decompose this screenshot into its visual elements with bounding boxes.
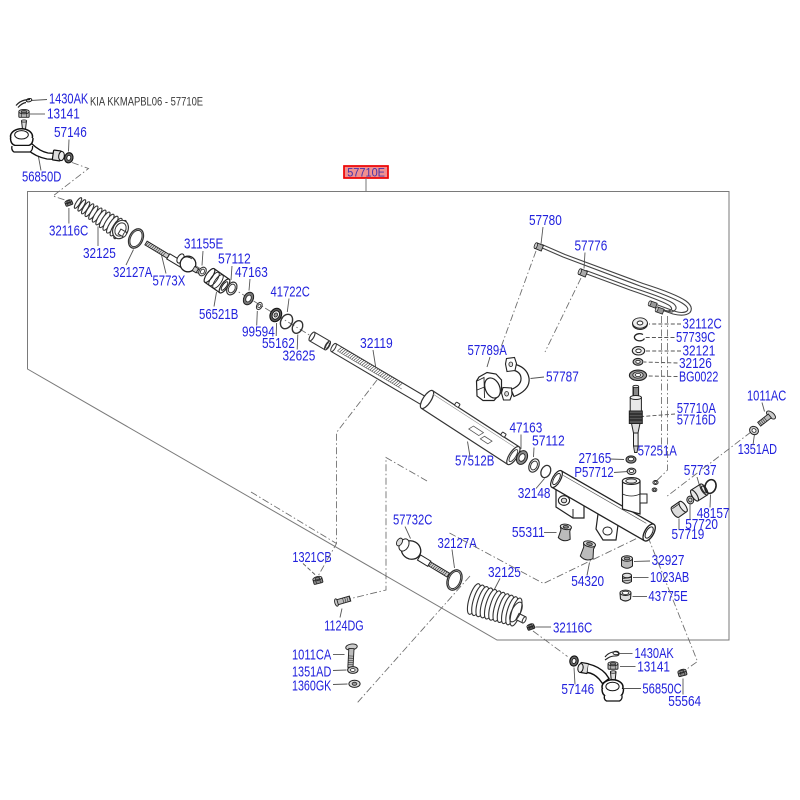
svg-text:1011AC: 1011AC [747, 389, 787, 405]
svg-text:47163: 47163 [235, 265, 268, 281]
svg-text:1360GK: 1360GK [292, 679, 331, 695]
svg-text:57787: 57787 [546, 370, 579, 386]
svg-text:5773X: 5773X [153, 274, 186, 290]
svg-text:57146: 57146 [54, 125, 87, 141]
svg-text:57776: 57776 [575, 239, 608, 255]
svg-text:32127A: 32127A [113, 265, 152, 281]
svg-text:41722C: 41722C [271, 285, 311, 301]
svg-text:32148: 32148 [518, 486, 551, 502]
svg-text:32127A: 32127A [438, 536, 477, 552]
svg-text:KIA KKMAPBL06 - 57710E: KIA KKMAPBL06 - 57710E [90, 95, 203, 109]
svg-text:56850D: 56850D [22, 170, 61, 186]
svg-text:32119: 32119 [360, 336, 393, 352]
svg-text:57716D: 57716D [677, 413, 716, 429]
svg-text:32125: 32125 [488, 565, 521, 581]
svg-text:1430AK: 1430AK [49, 92, 88, 108]
svg-text:32625: 32625 [283, 349, 316, 365]
svg-text:57789A: 57789A [468, 343, 507, 359]
svg-text:1023AB: 1023AB [650, 570, 689, 586]
svg-text:57146: 57146 [561, 682, 594, 698]
svg-text:13141: 13141 [637, 660, 670, 676]
svg-text:57710E: 57710E [347, 166, 385, 180]
svg-text:32125: 32125 [83, 246, 116, 262]
svg-text:1351AD: 1351AD [738, 442, 777, 458]
svg-text:1124DG: 1124DG [324, 619, 363, 635]
svg-text:1321CB: 1321CB [292, 550, 331, 566]
svg-text:57732C: 57732C [393, 513, 433, 529]
svg-text:31155E: 31155E [184, 237, 223, 253]
svg-text:54320: 54320 [571, 574, 604, 590]
svg-text:57719: 57719 [672, 527, 705, 543]
svg-text:P57712: P57712 [574, 465, 613, 481]
svg-text:43775E: 43775E [648, 589, 687, 605]
svg-text:56521B: 56521B [199, 307, 238, 323]
svg-text:57780: 57780 [529, 213, 562, 229]
svg-text:32116C: 32116C [49, 224, 89, 240]
svg-text:13141: 13141 [47, 107, 80, 123]
svg-text:55564: 55564 [668, 694, 701, 710]
svg-text:57251A: 57251A [638, 444, 677, 460]
svg-text:57512B: 57512B [455, 454, 494, 470]
svg-text:32116C: 32116C [553, 621, 593, 637]
svg-text:55311: 55311 [512, 525, 545, 541]
svg-text:32927: 32927 [652, 553, 685, 569]
svg-text:1011CA: 1011CA [292, 648, 331, 664]
svg-text:57112: 57112 [532, 434, 565, 450]
svg-text:BG0022: BG0022 [679, 370, 718, 386]
